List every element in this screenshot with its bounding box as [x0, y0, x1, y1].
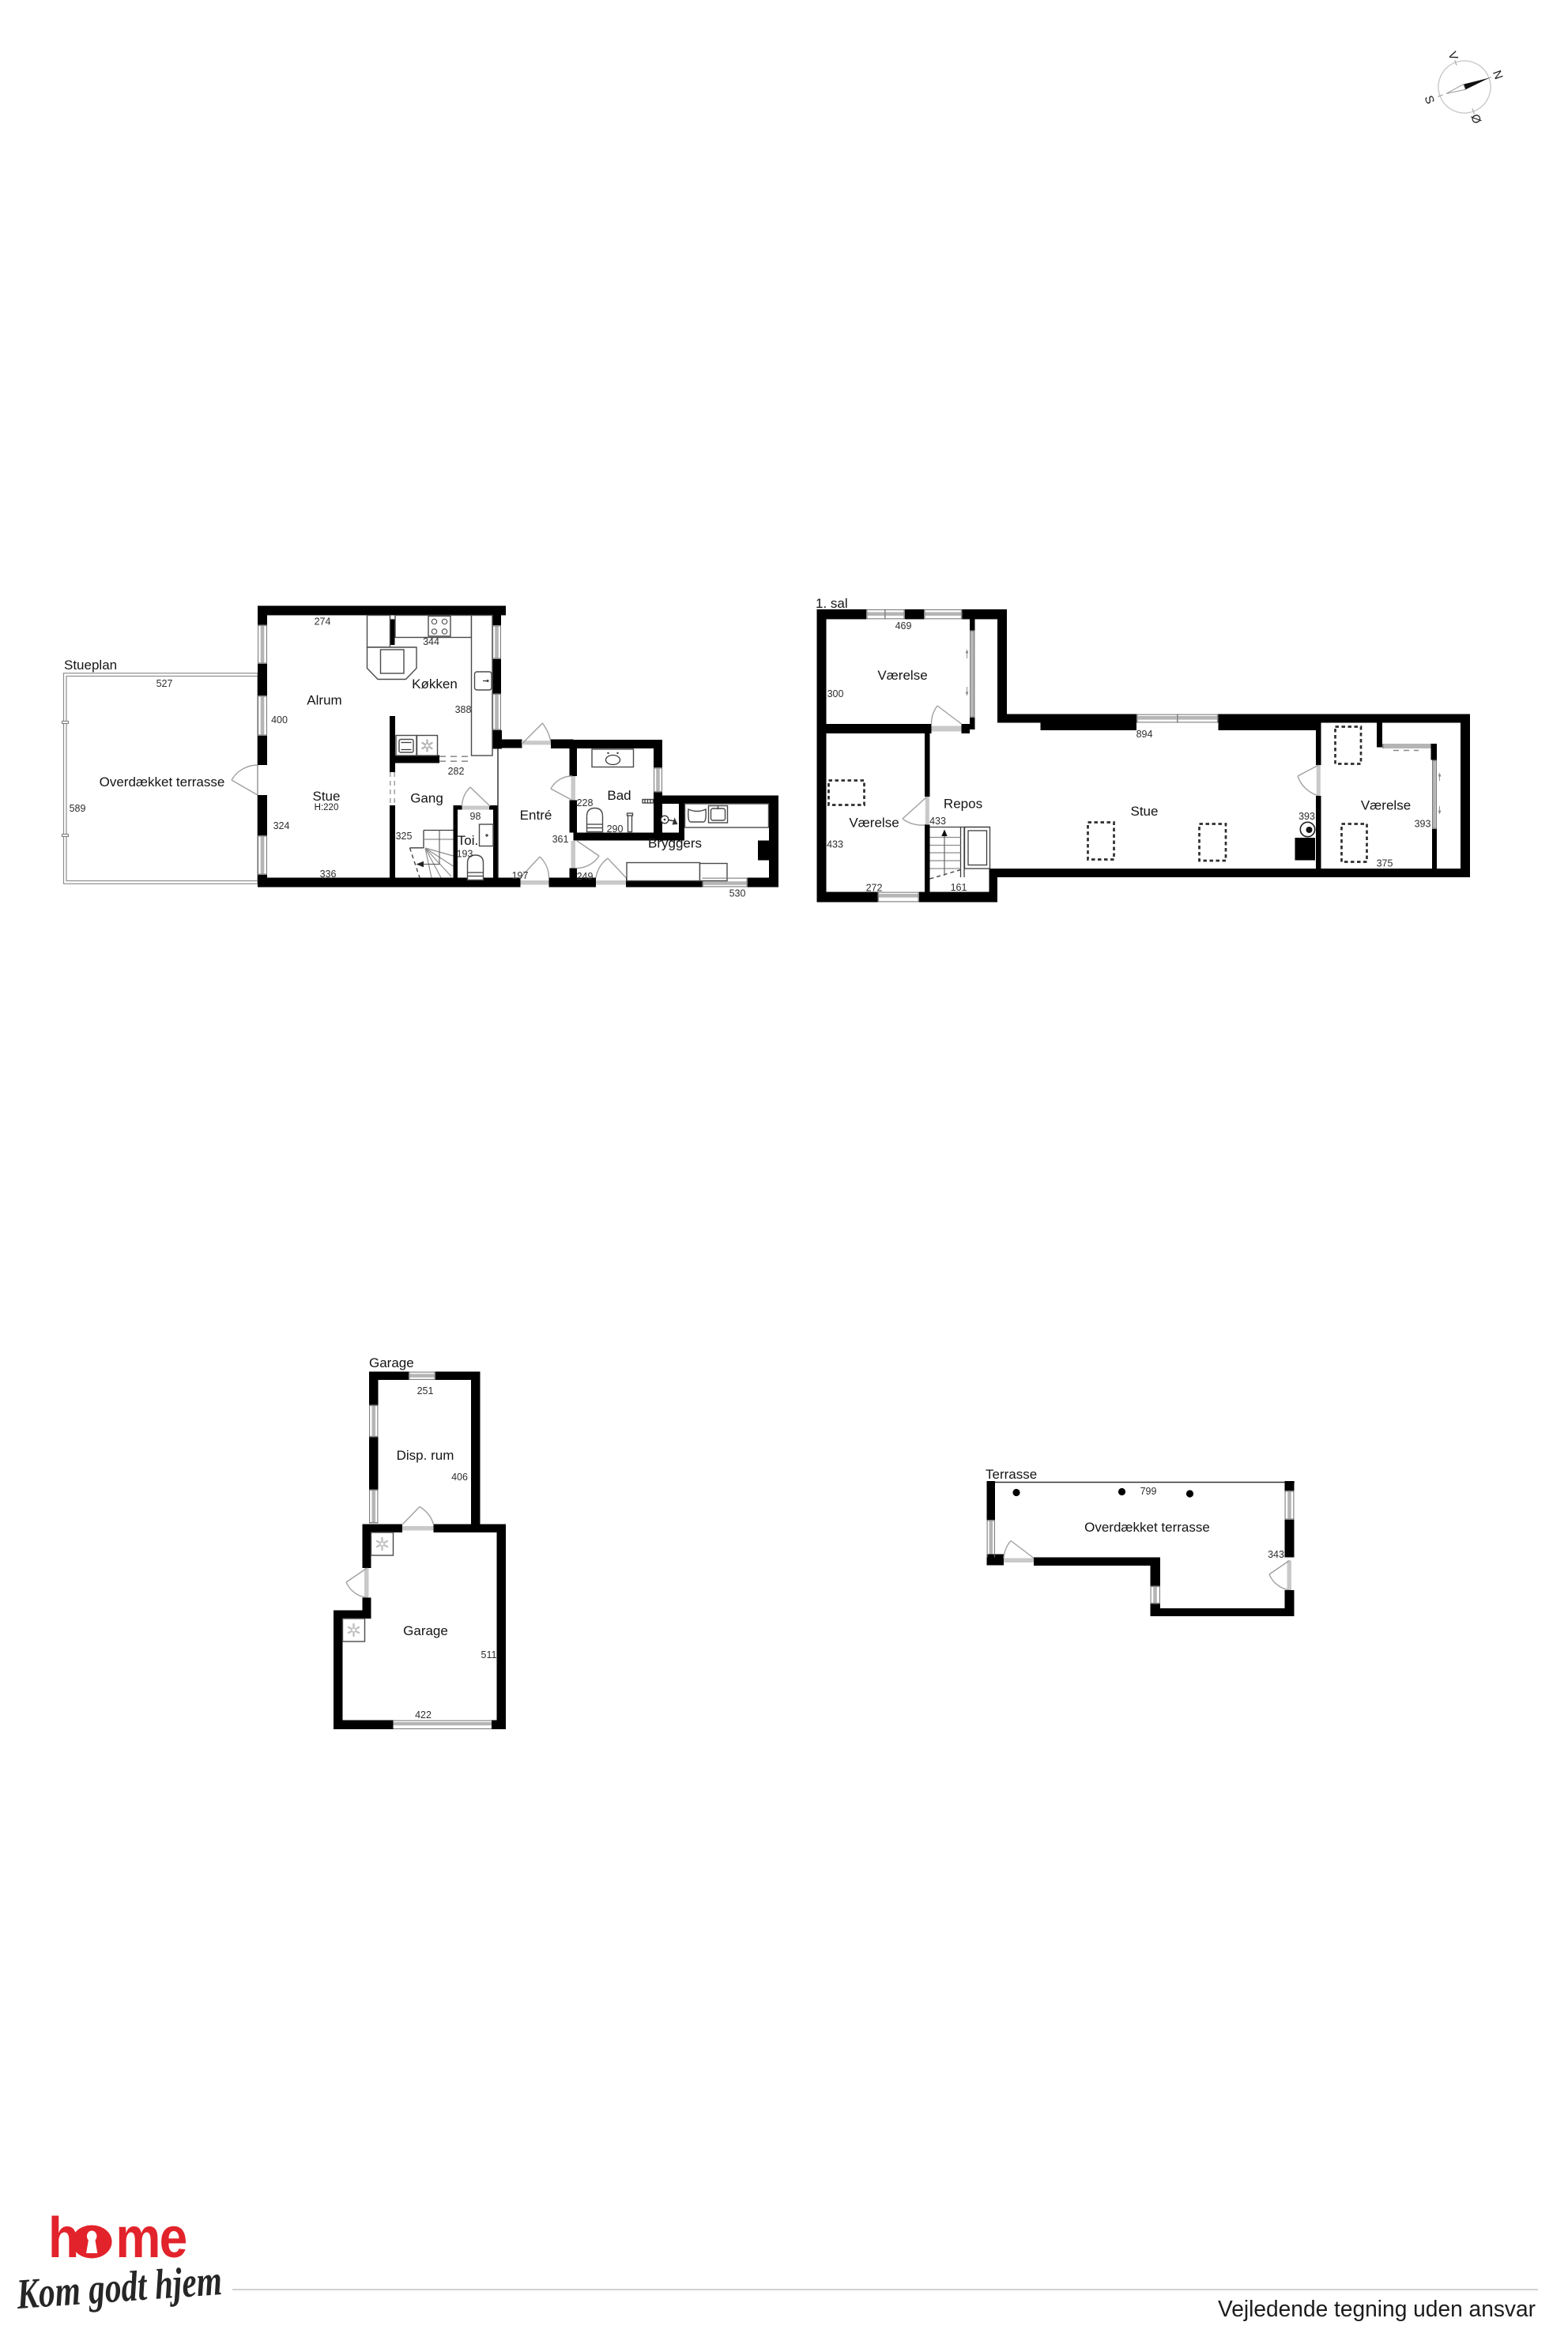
svg-text:Værelse: Værelse [1361, 798, 1411, 813]
svg-text:Terrasse: Terrasse [986, 1467, 1037, 1482]
svg-text:274: 274 [315, 616, 331, 628]
svg-text:589: 589 [70, 803, 86, 814]
svg-text:336: 336 [320, 869, 337, 880]
svg-text:249: 249 [577, 871, 594, 882]
svg-text:324: 324 [273, 820, 290, 831]
svg-text:Værelse: Værelse [849, 816, 899, 831]
svg-text:Garage: Garage [369, 1355, 414, 1370]
svg-text:Stueplan: Stueplan [64, 658, 117, 673]
svg-text:393: 393 [1415, 819, 1431, 830]
svg-text:511: 511 [481, 1649, 497, 1660]
svg-text:228: 228 [577, 797, 594, 808]
svg-text:422: 422 [415, 1709, 432, 1721]
svg-text:Overdækket terrasse: Overdækket terrasse [100, 775, 225, 790]
svg-text:Gang: Gang [410, 791, 443, 806]
svg-text:344: 344 [423, 636, 439, 647]
svg-text:375: 375 [1377, 858, 1393, 869]
svg-text:469: 469 [895, 620, 912, 631]
svg-text:343: 343 [1268, 1549, 1284, 1560]
svg-text:Repos: Repos [944, 797, 982, 812]
svg-text:Stue: Stue [1131, 804, 1159, 819]
svg-text:Vejledende tegning uden ansvar: Vejledende tegning uden ansvar [1218, 2297, 1536, 2322]
svg-text:Entré: Entré [520, 808, 552, 823]
svg-text:H:220: H:220 [315, 803, 339, 812]
svg-text:Overdækket terrasse: Overdækket terrasse [1084, 1520, 1210, 1535]
svg-text:300: 300 [827, 688, 844, 699]
svg-text:197: 197 [512, 870, 529, 881]
svg-text:Bryggers: Bryggers [648, 836, 702, 851]
svg-text:799: 799 [1140, 1486, 1157, 1497]
svg-text:98: 98 [470, 811, 481, 822]
svg-text:272: 272 [866, 883, 883, 894]
svg-text:361: 361 [552, 834, 569, 845]
svg-text:Stue: Stue [313, 789, 341, 804]
svg-text:161: 161 [951, 882, 967, 893]
svg-text:325: 325 [396, 831, 413, 842]
svg-text:393: 393 [1298, 811, 1315, 822]
svg-text:290: 290 [607, 824, 624, 835]
svg-text:Værelse: Værelse [877, 668, 927, 683]
svg-text:527: 527 [156, 678, 173, 689]
svg-text:282: 282 [448, 766, 465, 777]
svg-text:433: 433 [929, 816, 946, 827]
svg-text:894: 894 [1136, 729, 1153, 740]
svg-text:400: 400 [271, 714, 288, 726]
svg-text:193: 193 [457, 849, 473, 860]
svg-text:Garage: Garage [403, 1623, 448, 1638]
svg-text:Køkken: Køkken [412, 677, 458, 692]
svg-text:433: 433 [827, 839, 843, 850]
svg-text:251: 251 [417, 1385, 434, 1396]
svg-text:388: 388 [455, 704, 472, 715]
svg-text:406: 406 [451, 1472, 468, 1483]
svg-text:Toi.: Toi. [458, 833, 478, 848]
svg-text:530: 530 [729, 888, 746, 899]
svg-text:Bad: Bad [607, 788, 631, 803]
svg-text:Alrum: Alrum [307, 693, 341, 708]
svg-text:1. sal: 1. sal [816, 596, 848, 611]
svg-text:Disp. rum: Disp. rum [397, 1448, 454, 1463]
